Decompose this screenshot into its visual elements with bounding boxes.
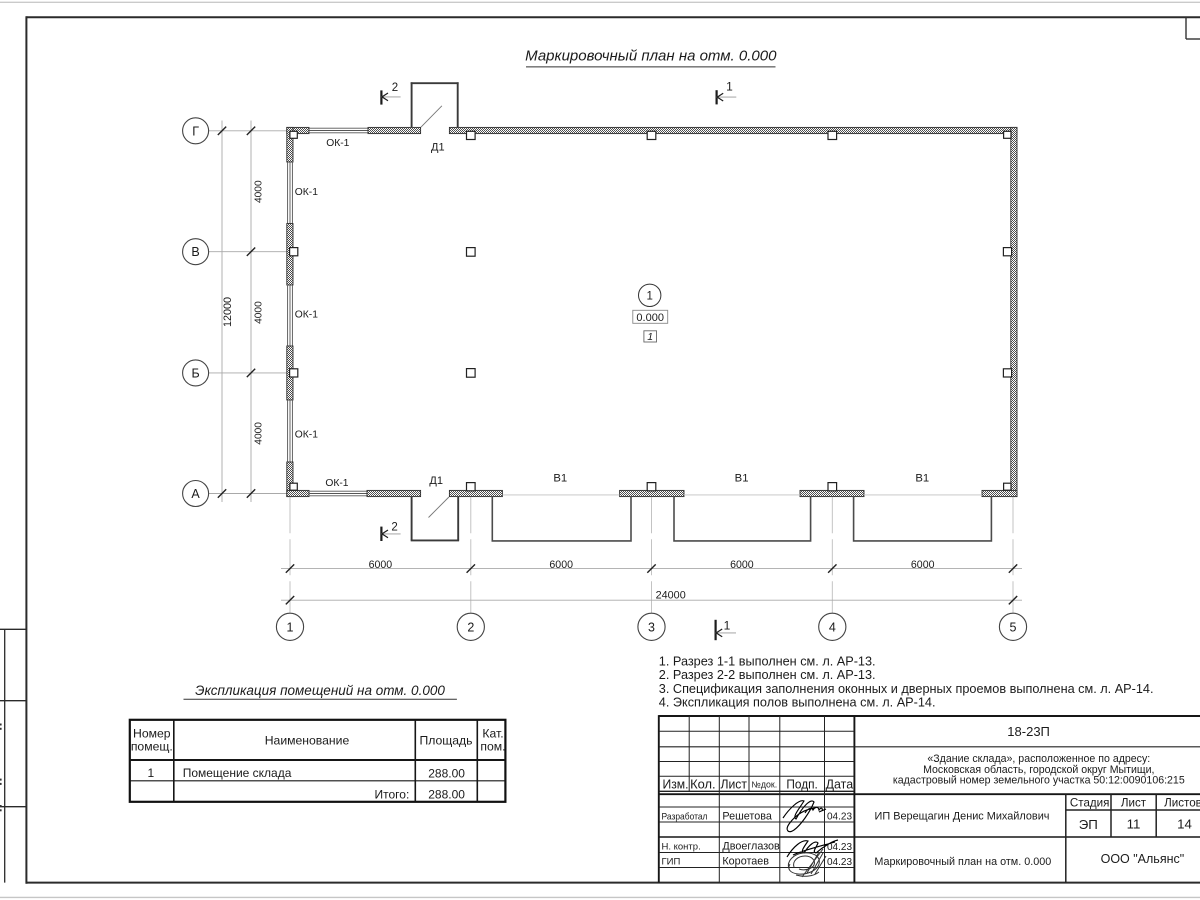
svg-text:В1: В1 bbox=[735, 472, 749, 484]
svg-text:Д1: Д1 bbox=[431, 142, 445, 154]
svg-text:24000: 24000 bbox=[656, 590, 686, 602]
svg-text:4000: 4000 bbox=[254, 301, 265, 324]
svg-text:В1: В1 bbox=[915, 472, 929, 484]
svg-text:1: 1 bbox=[287, 620, 294, 634]
svg-text:6000: 6000 bbox=[730, 559, 754, 571]
svg-text:А: А bbox=[191, 487, 200, 501]
svg-text:В1: В1 bbox=[553, 472, 567, 484]
svg-text:ИП Верещагин Денис Михайлович: ИП Верещагин Денис Михайлович bbox=[875, 811, 1050, 823]
svg-text:2: 2 bbox=[391, 521, 397, 533]
svg-text:ГИП: ГИП bbox=[662, 857, 681, 868]
svg-text:1: 1 bbox=[726, 80, 733, 94]
svg-text:288.00: 288.00 bbox=[428, 767, 465, 781]
svg-text:ОК-1: ОК-1 bbox=[295, 187, 318, 198]
svg-text:5: 5 bbox=[1010, 620, 1017, 634]
svg-text:Изм.: Изм. bbox=[663, 776, 689, 791]
svg-text:04.23: 04.23 bbox=[827, 857, 852, 868]
svg-text:Маркировочный план на отм. 0.0: Маркировочный план на отм. 0.000 bbox=[874, 856, 1051, 868]
svg-text:Разработал: Разработал bbox=[662, 811, 708, 822]
svg-text:Дата: Дата bbox=[826, 776, 854, 791]
svg-text:14: 14 bbox=[1177, 817, 1192, 832]
svg-text:Коротаев: Коротаев bbox=[722, 856, 769, 868]
svg-text:11: 11 bbox=[1127, 817, 1141, 832]
svg-text:1: 1 bbox=[724, 619, 731, 633]
svg-text:Н. контр.: Н. контр. bbox=[662, 842, 701, 853]
svg-text:Решетова: Решетова bbox=[722, 810, 772, 822]
svg-text:кадастровый номер земельного у: кадастровый номер земельного участка 50:… bbox=[893, 775, 1185, 787]
svg-text:Маркировочный план на отм. 0.0: Маркировочный план на отм. 0.000 bbox=[525, 47, 777, 64]
svg-text:Кол.: Кол. bbox=[690, 776, 716, 791]
svg-text:Б: Б bbox=[191, 366, 199, 380]
svg-text:Д1: Д1 bbox=[429, 475, 443, 487]
svg-text:Наименование: Наименование bbox=[265, 733, 350, 747]
svg-text:помещ.: помещ. bbox=[131, 739, 173, 753]
svg-text:0.000: 0.000 bbox=[636, 312, 664, 324]
svg-text:Площадь: Площадь bbox=[419, 733, 472, 747]
svg-text:ОК-1: ОК-1 bbox=[295, 310, 318, 321]
svg-text:04.23: 04.23 bbox=[827, 812, 852, 823]
svg-text:2: 2 bbox=[392, 82, 398, 94]
svg-text:4: 4 bbox=[829, 620, 836, 634]
svg-text:Подп.: Подп. bbox=[786, 776, 818, 791]
svg-text:Помещение склада: Помещение склада bbox=[183, 766, 292, 780]
svg-text:Листов: Листов bbox=[1164, 796, 1200, 809]
svg-text:Лист: Лист bbox=[720, 776, 747, 791]
svg-text:6000: 6000 bbox=[369, 559, 393, 571]
svg-text:1: 1 bbox=[646, 291, 652, 303]
svg-text:ООО "Альянс": ООО "Альянс" bbox=[1101, 852, 1185, 866]
svg-text:18-23П: 18-23П bbox=[1007, 724, 1050, 739]
svg-text:Экспликация помещений на отм.: Экспликация помещений на отм. 0.000 bbox=[195, 683, 445, 698]
svg-text:288.00: 288.00 bbox=[428, 788, 465, 802]
svg-text:12000: 12000 bbox=[222, 297, 234, 327]
svg-text:6000: 6000 bbox=[549, 559, 573, 571]
svg-text:пом.: пом. bbox=[480, 739, 505, 753]
svg-text:4000: 4000 bbox=[254, 180, 265, 203]
svg-text:Стадия: Стадия bbox=[1070, 796, 1110, 809]
svg-text:2: 2 bbox=[467, 620, 474, 634]
svg-text:Г: Г bbox=[192, 124, 199, 138]
svg-text:1: 1 bbox=[147, 766, 154, 780]
svg-text:1. Разрез 1-1 выполнен см. л.: 1. Разрез 1-1 выполнен см. л. АР-13. bbox=[659, 654, 876, 668]
svg-text:В: В bbox=[191, 245, 199, 259]
svg-text:№док.: №док. bbox=[751, 780, 777, 790]
svg-text:4000: 4000 bbox=[254, 422, 265, 445]
svg-text:Итого:: Итого: bbox=[375, 787, 410, 801]
svg-text:ОК-1: ОК-1 bbox=[326, 138, 349, 149]
svg-text:6000: 6000 bbox=[911, 559, 935, 571]
svg-text:3. Спецификация заполнения око: 3. Спецификация заполнения оконных и две… bbox=[659, 682, 1154, 696]
svg-text:1: 1 bbox=[647, 331, 653, 343]
svg-text:2. Разрез 2-2 выполнен см. л.: 2. Разрез 2-2 выполнен см. л. АР-13. bbox=[659, 668, 876, 682]
svg-text:Двоеглазов: Двоеглазов bbox=[722, 841, 780, 853]
svg-text:Лист: Лист bbox=[1121, 796, 1147, 809]
svg-text:3: 3 bbox=[648, 620, 655, 634]
svg-text:4. Экспликация полов выполнена: 4. Экспликация полов выполнена см. л. АР… bbox=[659, 696, 936, 710]
svg-text:ЭП: ЭП bbox=[1079, 817, 1098, 832]
svg-text:ОК-1: ОК-1 bbox=[325, 478, 348, 489]
svg-text:ОК-1: ОК-1 bbox=[295, 430, 318, 441]
